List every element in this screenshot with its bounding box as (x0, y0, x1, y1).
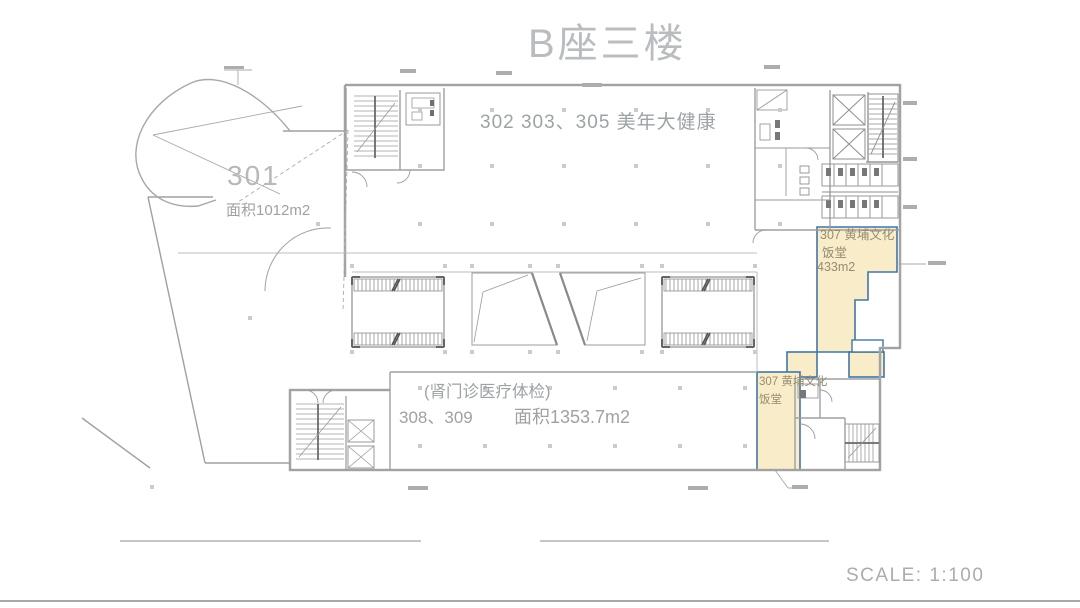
room-note-308: (肾门诊医疗体检) (424, 384, 551, 401)
room-307-lower-line2: 饭堂 (759, 395, 782, 407)
escalator-left (352, 277, 444, 347)
room-307-upper-area: 433m2 (817, 261, 855, 274)
stair-core-bottom-right (798, 384, 879, 462)
page-title: B座三楼 (528, 24, 687, 64)
stair-core-top (354, 93, 440, 158)
room-area-301: 面积1012m2 (226, 203, 310, 218)
highlight-area-307-boxes (787, 352, 884, 377)
scale-label: SCALE: 1:100 (846, 566, 984, 585)
service-core-right (833, 94, 898, 162)
room-307-upper-line2: 饭堂 (822, 247, 847, 260)
service-rooms-right (755, 90, 830, 200)
room-307-upper-line1: 307 黄埔文化 (820, 229, 894, 242)
corridor-lines (178, 253, 757, 372)
door-arcs (305, 148, 832, 439)
toilet-block (800, 164, 898, 218)
room-307-lower-line1: 307 黄埔文化 (759, 377, 827, 389)
room-label-302-305: 302 303、305 美年大健康 (480, 113, 717, 132)
floor-plan-page: B座三楼 302 303、305 美年大健康 301 面积1012m2 (肾门诊… (0, 0, 1080, 608)
floor-plan-drawing (0, 0, 1080, 608)
room-301-dashed-lines (238, 130, 348, 312)
stair-core-bottom-left (296, 396, 374, 470)
room-numbers-308-309: 308、309 (399, 409, 473, 426)
room-number-301: 301 (227, 162, 280, 190)
small-blue-box (852, 340, 883, 352)
atrium-voids (472, 273, 645, 345)
escalator-right (662, 277, 754, 347)
room-area-308: 面积1353.7m2 (514, 408, 630, 426)
